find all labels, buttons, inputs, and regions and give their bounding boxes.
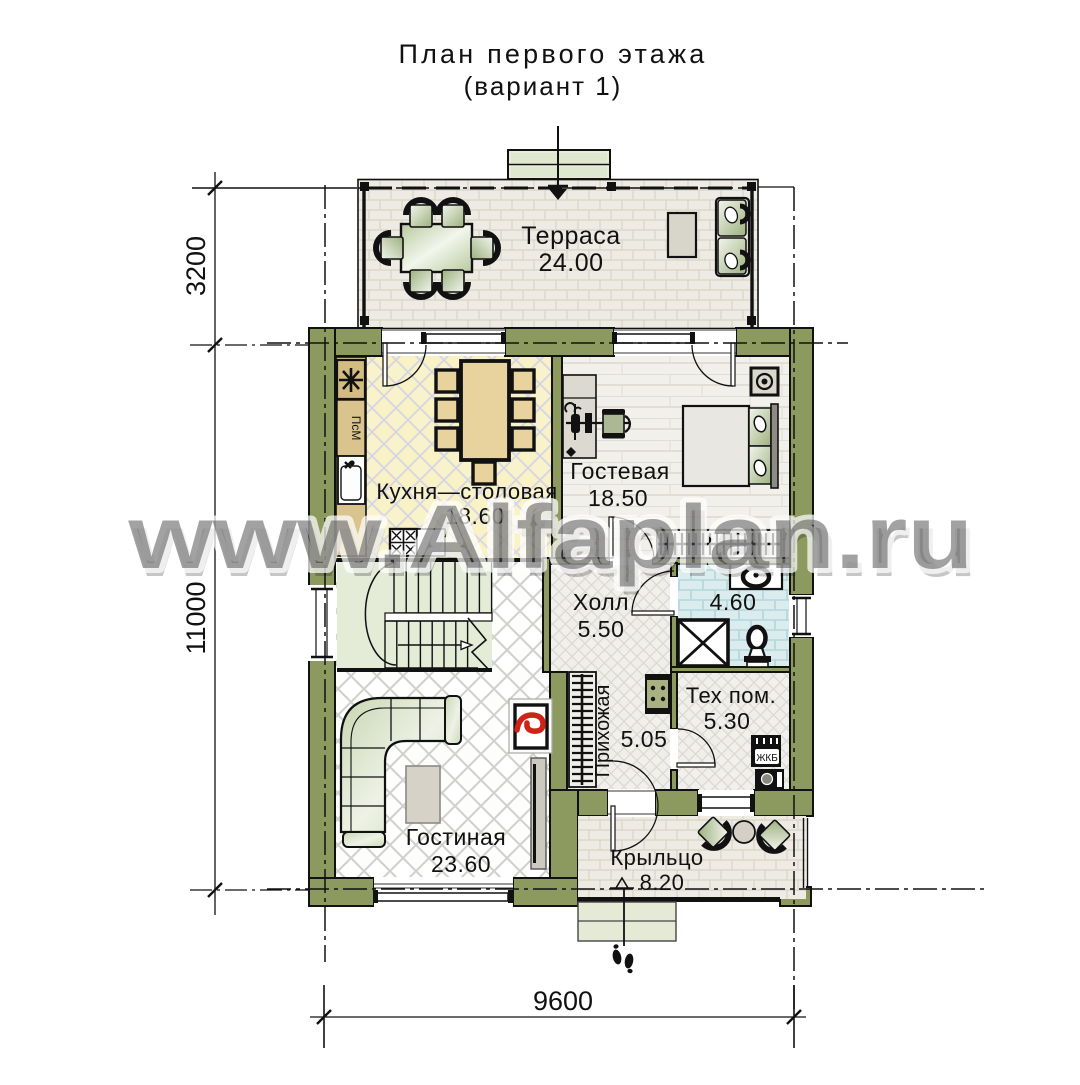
- svg-text:8.20: 8.20: [640, 870, 685, 895]
- svg-text:ПсМ: ПсМ: [349, 416, 363, 441]
- svg-text:Тех пом.: Тех пом.: [686, 683, 776, 708]
- svg-text:23.60: 23.60: [431, 851, 491, 877]
- svg-text:Гостиная: Гостиная: [406, 824, 507, 850]
- svg-text:Терраса: Терраса: [521, 222, 620, 250]
- svg-text:Прихожая: Прихожая: [592, 685, 614, 778]
- svg-text:3200: 3200: [181, 236, 211, 296]
- svg-text:24.00: 24.00: [538, 249, 603, 277]
- svg-text:Гостевая: Гостевая: [570, 458, 669, 484]
- svg-text:Крыльцо: Крыльцо: [610, 845, 703, 870]
- svg-text:5.05: 5.05: [621, 726, 668, 752]
- svg-text:(вариант 1): (вариант 1): [464, 71, 623, 101]
- svg-text:9600: 9600: [533, 986, 593, 1016]
- svg-text:www.Alfaplan.ru: www.Alfaplan.ru: [127, 488, 973, 588]
- svg-text:5.50: 5.50: [578, 616, 625, 642]
- svg-text:ЖКБ: ЖКБ: [756, 753, 778, 764]
- svg-text:5.30: 5.30: [704, 708, 751, 734]
- svg-text:План первого этажа: План первого этажа: [398, 39, 707, 69]
